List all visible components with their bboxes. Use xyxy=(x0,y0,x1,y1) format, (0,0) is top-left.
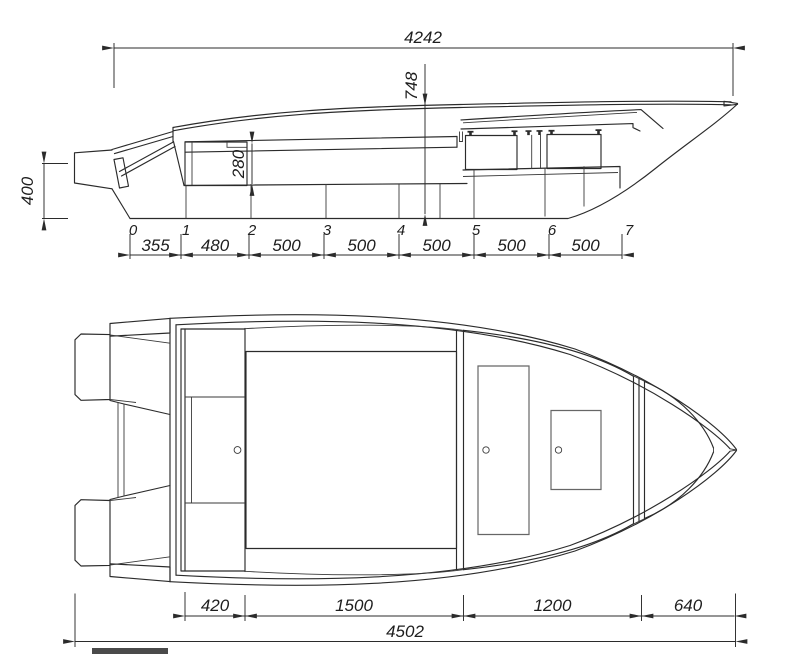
plan-view-foredeck xyxy=(464,330,714,569)
hatch-small-latch-hole xyxy=(555,447,561,453)
side-view-dimensions: 4242 748 280 400 0 1 2 3 4 5 6 7 xyxy=(18,28,733,259)
plan-view-aft-bench xyxy=(181,329,245,572)
boat-technical-drawing: 4242 748 280 400 0 1 2 3 4 5 6 7 xyxy=(0,0,800,669)
dim-plan-segment-0: 420 xyxy=(201,596,230,615)
dim-bow-height: 748 xyxy=(402,71,421,100)
plan-view: 420 1500 1200 640 4502 xyxy=(75,315,737,654)
dim-spacing-6: 500 xyxy=(571,236,600,255)
dim-spacing-3: 500 xyxy=(347,236,376,255)
plan-view-hull-outline xyxy=(75,315,737,586)
dim-cockpit-depth: 280 xyxy=(229,149,248,179)
side-view: 4242 748 280 400 0 1 2 3 4 5 6 7 xyxy=(18,28,738,259)
scale-bar-fragment xyxy=(92,648,168,654)
station-label-4: 4 xyxy=(397,222,405,239)
foredeck-hatch-large xyxy=(478,366,529,535)
dim-overall-length-plan: 4502 xyxy=(386,622,424,641)
dim-plan-segment-1: 1500 xyxy=(335,596,373,615)
side-view-foredeck xyxy=(460,110,664,188)
bench-latch-hole xyxy=(234,447,241,454)
foredeck-hatch-small xyxy=(551,411,601,490)
dim-overall-length-side: 4242 xyxy=(404,28,442,47)
dim-transom-height: 400 xyxy=(18,176,37,205)
hatch-large-latch-hole xyxy=(483,447,489,453)
dim-spacing-4: 500 xyxy=(422,236,451,255)
side-view-hull-profile xyxy=(75,101,738,218)
dim-spacing-5: 500 xyxy=(497,236,526,255)
dim-plan-segment-2: 1200 xyxy=(534,596,572,615)
station-label-7: 7 xyxy=(625,222,634,239)
dim-plan-segment-3: 640 xyxy=(674,596,703,615)
station-label-1: 1 xyxy=(182,222,190,239)
plan-view-dimensions: 420 1500 1200 640 4502 xyxy=(75,592,736,654)
plan-view-cockpit xyxy=(245,325,464,575)
dim-spacing-0: 355 xyxy=(141,236,170,255)
dim-spacing-1: 480 xyxy=(201,236,230,255)
dim-spacing-2: 500 xyxy=(272,236,301,255)
drawing-canvas: 4242 748 280 400 0 1 2 3 4 5 6 7 xyxy=(0,0,800,669)
station-label-2: 2 xyxy=(247,222,257,239)
station-label-5: 5 xyxy=(472,222,481,239)
